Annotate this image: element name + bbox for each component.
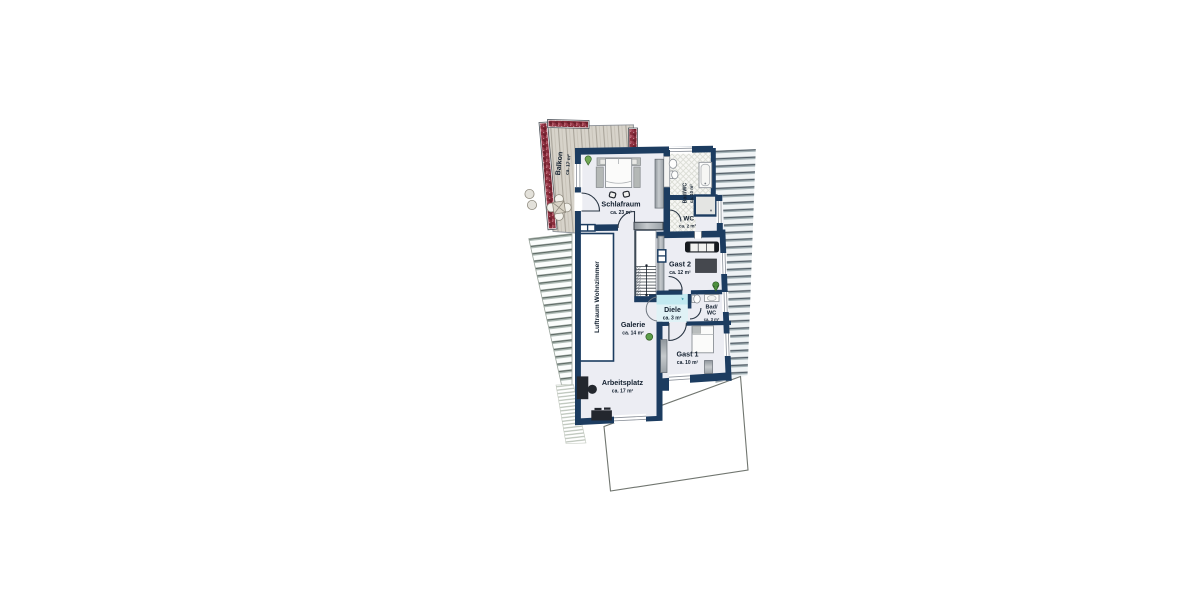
svg-text:Arbeitsplatz: Arbeitsplatz (602, 378, 644, 387)
svg-text:Gast 2: Gast 2 (669, 260, 691, 269)
svg-text:ca. 12 m²: ca. 12 m² (669, 270, 691, 276)
svg-text:Diele: Diele (664, 307, 681, 314)
svg-text:Schlafraum: Schlafraum (601, 200, 640, 209)
svg-text:ca. 10 m²: ca. 10 m² (689, 184, 694, 203)
svg-text:ca. 14 m²: ca. 14 m² (622, 331, 644, 337)
svg-text:ca. 3 m²: ca. 3 m² (663, 316, 682, 322)
svg-text:ca. 2 m²: ca. 2 m² (679, 224, 697, 229)
svg-text:Gast 1: Gast 1 (677, 350, 699, 359)
svg-text:Bad/WC: Bad/WC (682, 183, 688, 204)
svg-text:ca. 3 m²: ca. 3 m² (704, 317, 720, 322)
svg-text:Bad/: Bad/ (705, 304, 718, 310)
svg-text:ca. 10 m²: ca. 10 m² (677, 360, 699, 366)
svg-text:Luftraum Wohnzimmer: Luftraum Wohnzimmer (594, 261, 601, 333)
svg-text:WC: WC (707, 311, 716, 317)
svg-text:Galerie: Galerie (621, 320, 645, 329)
svg-text:ca. 23 m²: ca. 23 m² (610, 210, 632, 216)
svg-text:ca. 17 m²: ca. 17 m² (612, 389, 634, 395)
svg-text:WC: WC (683, 216, 694, 223)
